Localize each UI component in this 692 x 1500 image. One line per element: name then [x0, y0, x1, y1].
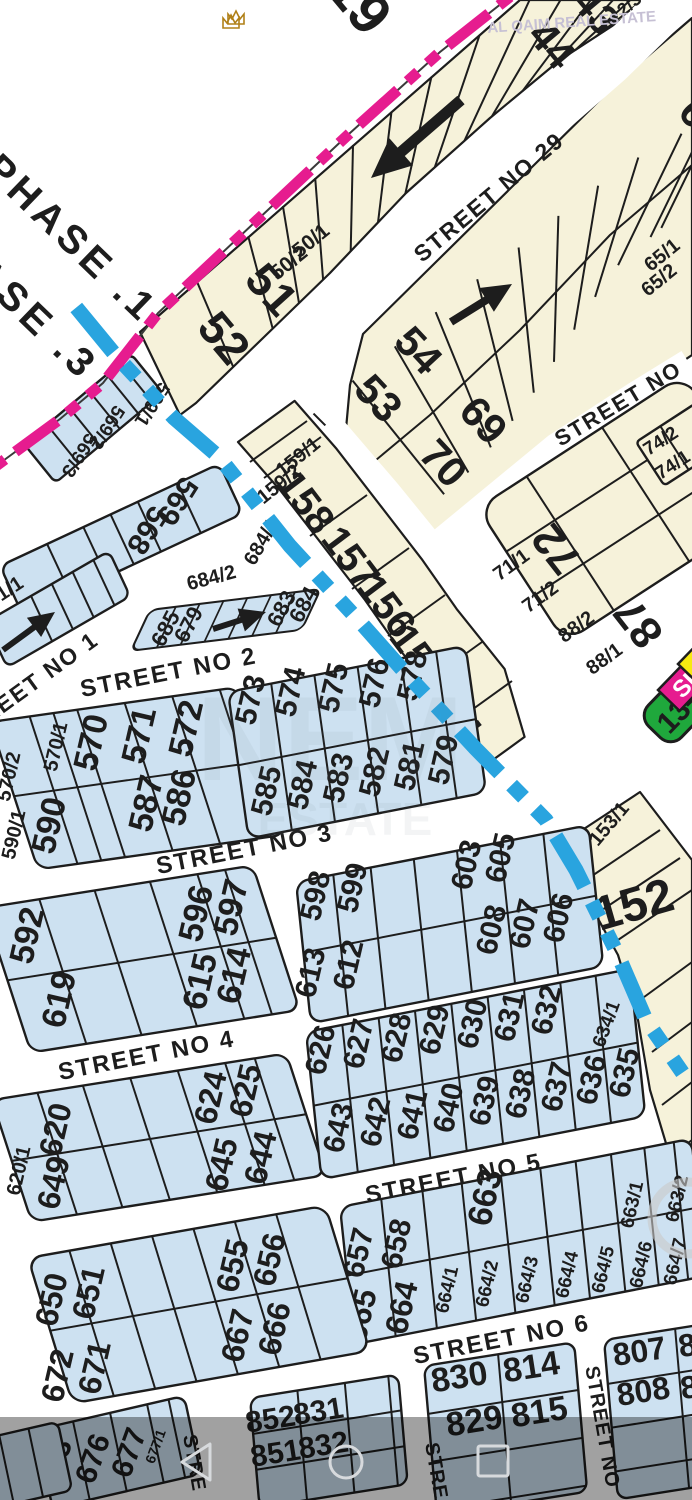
svg-text:ESTATE: ESTATE [258, 793, 433, 845]
svg-text:NEM: NEM [197, 672, 464, 806]
